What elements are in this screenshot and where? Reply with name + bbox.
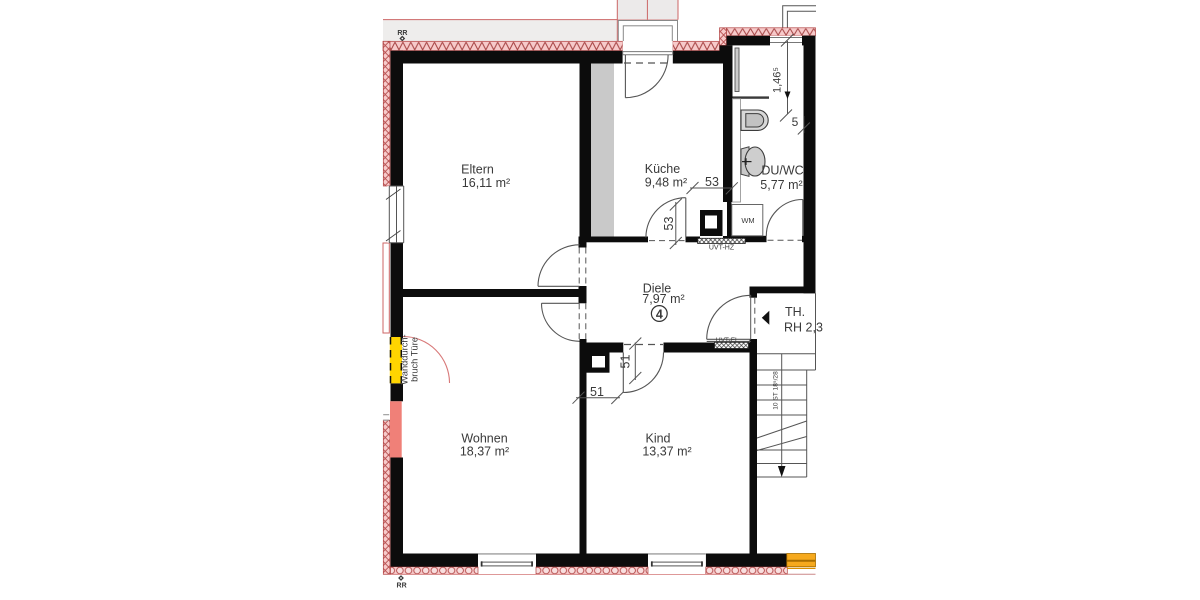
svg-text:53: 53 — [662, 217, 676, 231]
svg-text:Eltern: Eltern — [461, 163, 494, 177]
svg-text:TH.: TH. — [785, 305, 805, 319]
svg-text:RR: RR — [397, 583, 407, 590]
svg-text:9,48 m²: 9,48 m² — [645, 176, 687, 190]
svg-text:UVT-HZ: UVT-HZ — [709, 245, 735, 252]
svg-text:51: 51 — [619, 355, 633, 369]
svg-text:bruch Türe: bruch Türe — [410, 337, 420, 382]
svg-text:5,77 m²: 5,77 m² — [760, 178, 802, 192]
svg-text:Küche: Küche — [645, 162, 680, 176]
svg-text:10 ST 18⁵/28: 10 ST 18⁵/28 — [773, 371, 780, 410]
svg-text:Wohnen: Wohnen — [461, 432, 507, 446]
svg-text:UVT-EL: UVT-EL — [716, 337, 739, 344]
svg-text:RH 2,3: RH 2,3 — [784, 321, 823, 335]
svg-text:1,46⁵: 1,46⁵ — [772, 67, 784, 93]
svg-text:Wanddurch-: Wanddurch- — [399, 334, 409, 384]
svg-text:DU/WC: DU/WC — [761, 164, 803, 178]
svg-text:WM: WM — [741, 216, 754, 225]
svg-text:16,11 m²: 16,11 m² — [462, 176, 510, 190]
svg-text:Kind: Kind — [645, 432, 670, 446]
svg-text:7,97 m²: 7,97 m² — [642, 292, 684, 306]
svg-text:5: 5 — [792, 115, 799, 129]
svg-text:51: 51 — [590, 385, 604, 399]
svg-text:13,37 m²: 13,37 m² — [642, 445, 691, 459]
svg-text:18,37 m²: 18,37 m² — [460, 445, 509, 459]
svg-text:4: 4 — [656, 307, 663, 321]
svg-text:53: 53 — [705, 175, 719, 189]
